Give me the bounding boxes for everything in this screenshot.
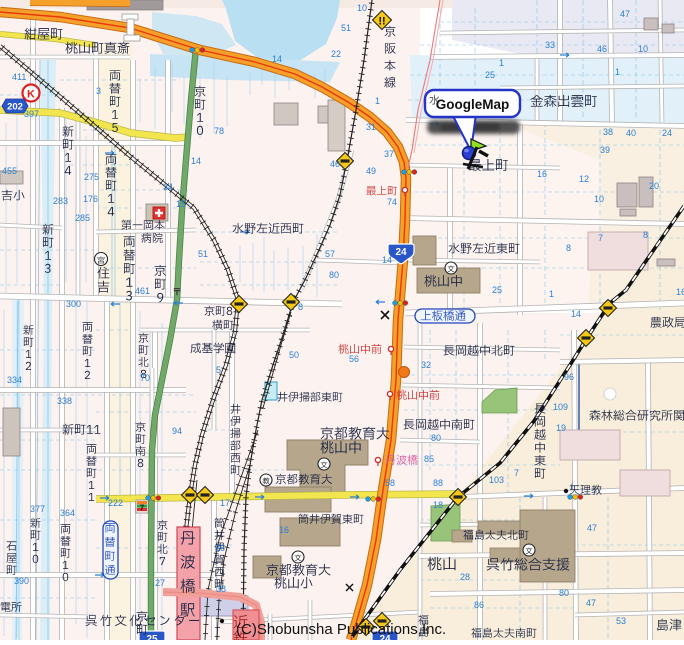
svg-text:(C)Shobunsha Publications,Inc.: (C)Shobunsha Publications,Inc.	[236, 621, 446, 638]
svg-text:202: 202	[7, 102, 23, 113]
svg-text:51: 51	[198, 249, 208, 259]
svg-text:10: 10	[594, 194, 604, 204]
svg-text:300: 300	[66, 299, 81, 309]
svg-text:57: 57	[325, 249, 335, 259]
svg-text:78: 78	[214, 126, 224, 136]
svg-text:36: 36	[215, 543, 225, 553]
svg-text:17: 17	[220, 498, 230, 508]
svg-text:1: 1	[499, 58, 504, 68]
svg-text:364: 364	[60, 508, 75, 518]
svg-text:14: 14	[571, 309, 581, 319]
svg-text:74: 74	[387, 197, 397, 207]
svg-text:397: 397	[24, 109, 39, 119]
svg-text:103: 103	[489, 475, 504, 485]
svg-text:86: 86	[474, 600, 484, 610]
svg-text:3: 3	[96, 86, 101, 96]
svg-text:33: 33	[545, 40, 555, 50]
svg-text:80: 80	[431, 433, 441, 443]
svg-text:34: 34	[163, 182, 173, 192]
svg-text:10: 10	[638, 44, 648, 54]
svg-text:22: 22	[331, 49, 341, 59]
svg-text:47: 47	[620, 9, 630, 19]
svg-text:377: 377	[30, 504, 45, 514]
svg-text:50: 50	[289, 350, 299, 360]
svg-text:390: 390	[14, 576, 29, 586]
svg-text:10: 10	[357, 3, 367, 13]
svg-text:31: 31	[366, 122, 376, 132]
svg-text:18: 18	[433, 500, 443, 510]
svg-text:56: 56	[349, 354, 359, 364]
svg-text:39: 39	[600, 145, 610, 155]
svg-text:38: 38	[603, 127, 613, 137]
svg-text:461: 461	[135, 286, 150, 296]
svg-text:80: 80	[559, 588, 569, 598]
svg-text:38: 38	[216, 584, 226, 594]
svg-text:40: 40	[626, 128, 636, 138]
svg-text:12: 12	[579, 174, 589, 184]
svg-text:283: 283	[53, 196, 68, 206]
svg-text:7: 7	[140, 504, 145, 513]
svg-text:28: 28	[460, 572, 470, 582]
svg-text:19: 19	[556, 423, 566, 433]
svg-text:58: 58	[385, 478, 395, 488]
svg-text:88: 88	[433, 478, 443, 488]
svg-text:!!: !!	[378, 16, 385, 28]
svg-text:8: 8	[643, 230, 648, 240]
svg-text:5: 5	[216, 365, 221, 375]
svg-text:176: 176	[83, 194, 98, 204]
svg-text:25: 25	[492, 285, 502, 295]
svg-text:37: 37	[384, 149, 394, 159]
svg-text:46: 46	[330, 159, 340, 169]
svg-text:285: 285	[75, 213, 90, 223]
svg-text:GoogleMap: GoogleMap	[436, 97, 510, 112]
svg-text:15-: 15-	[176, 199, 189, 209]
svg-text:20: 20	[649, 181, 659, 191]
svg-text:1: 1	[615, 67, 620, 77]
svg-text:275: 275	[84, 172, 99, 182]
svg-text:85: 85	[424, 454, 434, 464]
svg-text:49: 49	[366, 166, 376, 176]
svg-text:24: 24	[395, 247, 407, 258]
svg-text:53: 53	[616, 616, 626, 626]
svg-text:96: 96	[564, 372, 574, 382]
svg-text:24: 24	[662, 128, 672, 138]
svg-text:16: 16	[537, 169, 547, 179]
svg-text:7: 7	[514, 468, 519, 478]
svg-text:16: 16	[676, 287, 684, 297]
svg-text:70: 70	[140, 373, 150, 383]
svg-text:411: 411	[12, 72, 26, 82]
svg-text:16: 16	[279, 525, 289, 535]
svg-text:109: 109	[553, 402, 568, 412]
svg-text:14: 14	[382, 255, 392, 265]
svg-text:338: 338	[57, 396, 72, 406]
svg-text:47: 47	[587, 523, 597, 533]
svg-text:94: 94	[172, 426, 182, 436]
svg-text:25: 25	[485, 70, 495, 80]
svg-text:1: 1	[375, 96, 380, 106]
svg-text:K: K	[27, 89, 35, 101]
svg-text:27: 27	[155, 578, 165, 588]
svg-text:455: 455	[2, 166, 17, 176]
svg-text:14: 14	[191, 156, 201, 166]
svg-text:222: 222	[108, 498, 123, 508]
svg-text:7: 7	[598, 233, 603, 243]
svg-text:51: 51	[341, 23, 351, 33]
svg-text:32: 32	[421, 360, 431, 370]
svg-text:〒: 〒	[172, 287, 181, 297]
svg-text:80: 80	[329, 270, 339, 280]
svg-text:1: 1	[549, 289, 554, 299]
svg-text:8: 8	[566, 243, 571, 253]
svg-text:14: 14	[272, 54, 282, 64]
svg-text:8: 8	[298, 302, 303, 312]
svg-text:334: 334	[7, 375, 22, 385]
svg-text:46: 46	[597, 44, 607, 54]
svg-text:47: 47	[586, 598, 596, 608]
svg-text:25: 25	[146, 634, 158, 640]
